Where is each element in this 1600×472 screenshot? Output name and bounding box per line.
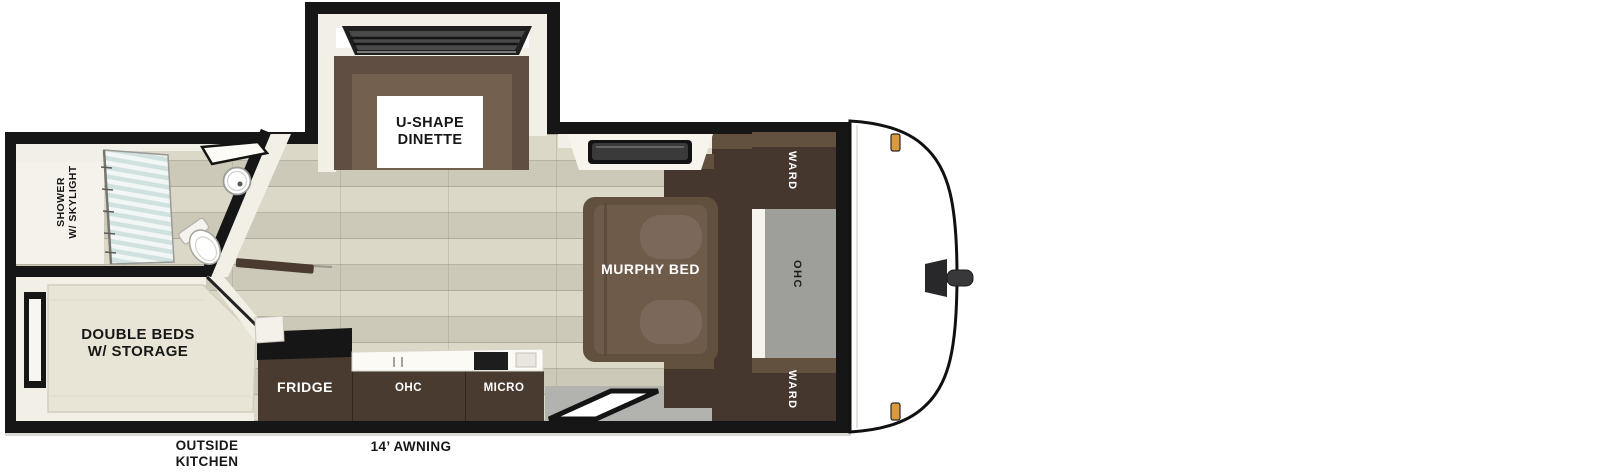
bath-door (236, 258, 314, 274)
fridge-label: FRIDGE (258, 379, 352, 395)
ohc-right-label: OHC (791, 246, 803, 302)
dinette-label-line1: U-SHAPE (396, 115, 464, 132)
wardrobe-bottom-label: WARD (786, 360, 798, 420)
outside-kitchen-line1: OUTSIDE (176, 438, 239, 454)
outside-kitchen-label: OUTSIDE KITCHEN (147, 438, 267, 469)
double-beds-label: DOUBLE BEDS W/ STORAGE (58, 326, 218, 361)
hitch-arm (947, 270, 973, 286)
shower-label-line2: W/ SKYLIGHT (67, 165, 79, 238)
microwave-label: MICRO (465, 382, 543, 394)
marker-light-bottom (891, 403, 900, 420)
dinette-label-box: U-SHAPE DINETTE (377, 96, 483, 168)
shower-glass-door (104, 150, 174, 264)
marker-light-top (891, 134, 900, 151)
double-beds-label-line2: W/ STORAGE (88, 343, 188, 360)
entry-door-mat (549, 391, 658, 419)
awning-label: 14’ AWNING (346, 439, 476, 455)
kitchen-end-cabinet (255, 316, 284, 343)
kitchen-ohc-label: OHC (352, 382, 465, 394)
hitch-coupler (925, 259, 947, 297)
wardrobe-top-label: WARD (786, 136, 798, 206)
dinette-label-line2: DINETTE (398, 132, 463, 149)
double-beds-label-line1: DOUBLE BEDS (81, 326, 195, 343)
cooktop (474, 352, 508, 370)
shower-label: SHOWER W/ SKYLIGHT (53, 160, 81, 244)
murphy-bed-label: MURPHY BED (583, 261, 718, 277)
kitchen-countertop (352, 349, 543, 371)
floorplan-detail-layer (0, 0, 1600, 472)
rv-floorplan: U-SHAPE DINETTE SHOWER W/ SKYLIGHT DOUBL… (0, 0, 1600, 472)
shower-label-line1: SHOWER (55, 177, 67, 227)
outside-kitchen-line2: KITCHEN (176, 454, 239, 470)
